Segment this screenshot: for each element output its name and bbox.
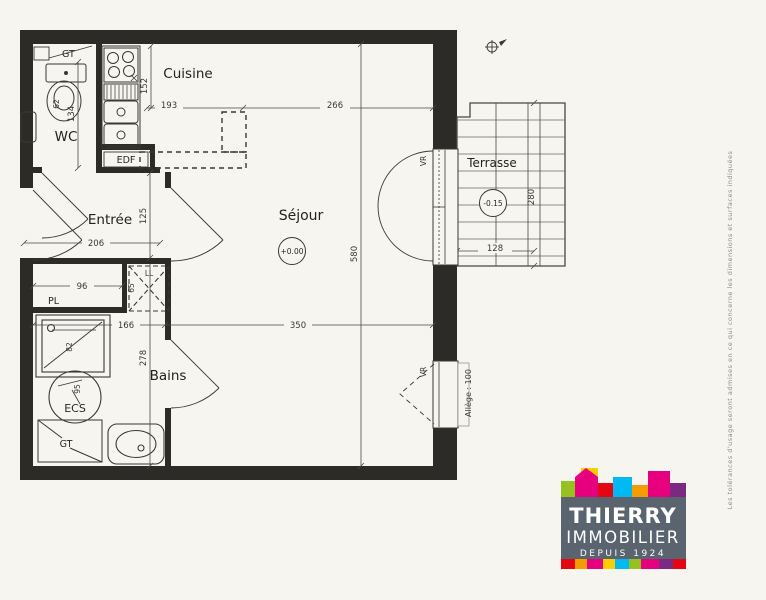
vr-label-door: VR (419, 156, 428, 166)
french-door (378, 149, 458, 265)
dim-280: 280 (527, 189, 537, 205)
room-label-entree: Entrée (88, 212, 132, 228)
entry-door-gap (20, 188, 33, 258)
logo-block (613, 477, 632, 497)
logo-block (598, 483, 613, 497)
agency-logo: THIERRY IMMOBILIER DEPUIS 1924 (561, 468, 686, 569)
dim-166: 166 (118, 321, 134, 331)
ecs-label: ECS (64, 402, 86, 415)
edf-label: EDF (117, 155, 136, 166)
dim-278: 278 (139, 350, 149, 366)
gt-bottom-label: GT (60, 439, 73, 450)
kitchen-unit (102, 46, 140, 148)
washbasin (108, 424, 164, 464)
logo-block (632, 485, 648, 497)
room-label-wc: WC (55, 129, 78, 145)
logo-line1: THIERRY (569, 504, 676, 528)
dim-350: 350 (290, 321, 306, 331)
svg-text:+0.00: +0.00 (281, 247, 304, 256)
dim-95: 95 (73, 384, 82, 394)
room-label-cuisine: Cuisine (163, 66, 212, 82)
svg-text:-0.15: -0.15 (483, 199, 503, 208)
plan-disclaimer: Les tolérances d'usage seront admises en… (726, 150, 734, 509)
ll-label: LL (145, 269, 154, 278)
room-label-bains: Bains (150, 368, 187, 384)
dim-206: 206 (88, 239, 104, 249)
gt-top-label: GT (62, 49, 75, 60)
pl-label: PL (48, 296, 60, 307)
vr-label-window: VR (419, 367, 428, 377)
dim-62: 62 (52, 99, 61, 109)
logo-strip (615, 559, 629, 569)
dim-152: 152 (140, 78, 150, 94)
dim-580: 580 (350, 246, 360, 262)
water-heater-ecs (49, 371, 101, 423)
logo-strip (575, 559, 587, 569)
terrace (457, 103, 565, 266)
sejour-level-marker: +0.00 (279, 238, 306, 265)
north-symbol-icon (485, 39, 507, 54)
logo-strip (659, 559, 673, 569)
logo-block (670, 483, 686, 497)
logo-strip (641, 559, 659, 569)
logo-strip (673, 559, 686, 569)
logo-block (648, 471, 670, 497)
dim-82: 82 (65, 342, 74, 352)
dim-96: 96 (77, 282, 88, 292)
room-label-terrasse: Terrasse (466, 156, 517, 170)
room-label-sejour: Séjour (279, 208, 324, 224)
logo-strip (629, 559, 641, 569)
window-sejour (400, 361, 469, 428)
dim-193: 193 (161, 101, 177, 111)
logo-line3: DEPUIS 1924 (580, 549, 666, 559)
logo-strip (561, 559, 575, 569)
floor-plan-canvas: Terrasse -0.15 128 280 VR VR Allège : 10… (0, 0, 766, 600)
kitchen-counter-dashed (140, 112, 246, 168)
logo-strip (587, 559, 603, 569)
toilet (46, 64, 86, 121)
terrace-level-marker: -0.15 (480, 190, 507, 217)
dim-65: 65 (127, 283, 136, 293)
dim-125: 125 (139, 208, 149, 224)
dim-134: 134 (67, 106, 77, 122)
dim-266: 266 (327, 101, 343, 111)
dim-128: 128 (487, 244, 503, 254)
logo-strip (603, 559, 615, 569)
allege-label: Allège : 100 (463, 369, 473, 417)
logo-line2: IMMOBILIER (566, 528, 679, 547)
